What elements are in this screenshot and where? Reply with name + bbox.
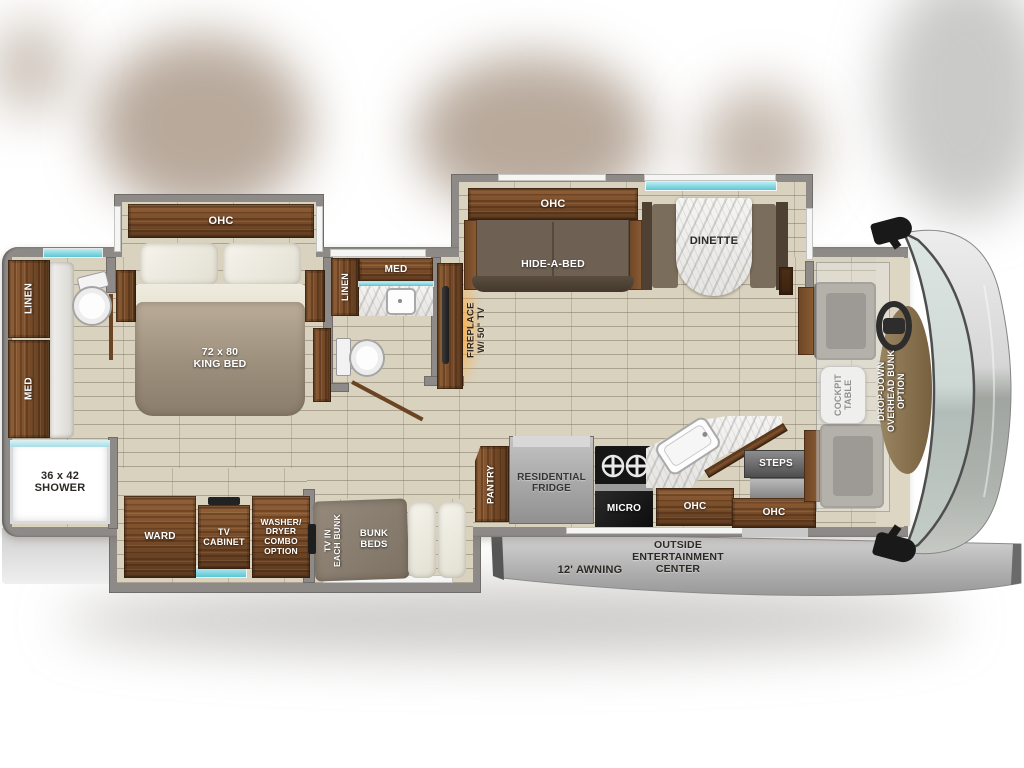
tv-cabinet-label: TV CABINET bbox=[198, 505, 250, 569]
mid-toilet-bowl bbox=[349, 339, 385, 377]
mid-linen-cabinet: LINEN bbox=[331, 258, 359, 316]
living-ohc-label: OHC bbox=[468, 188, 638, 220]
mid-top-window bbox=[330, 249, 426, 257]
pantry-cabinet: PANTRY bbox=[475, 446, 509, 522]
king-bed-label: 72 x 80 KING BED bbox=[135, 302, 305, 416]
dinette-table: DINETTE bbox=[676, 198, 752, 296]
burner-icons bbox=[595, 446, 653, 486]
bunk-beds-label: BUNK BEDS bbox=[348, 524, 400, 556]
awning-length-label: 12' AWNING bbox=[534, 563, 646, 577]
microwave: MICRO bbox=[595, 491, 653, 527]
cooktop bbox=[595, 446, 653, 486]
mid-linen-label: LINEN bbox=[331, 258, 359, 316]
rv-floor-plan: OUTSIDE ENTERTAINMENT CENTER 12' AWNING … bbox=[0, 0, 1024, 768]
dinette-label: DINETTE bbox=[676, 186, 752, 296]
entry-door-opening bbox=[742, 527, 808, 537]
living-slide-window-2 bbox=[644, 174, 776, 181]
king-bed: 72 x 80 KING BED bbox=[133, 240, 308, 416]
bedroom-dresser bbox=[313, 328, 331, 402]
kitchen-ohc-label: OHC bbox=[656, 488, 734, 526]
shower-stall: 36 x 42 SHOWER bbox=[10, 440, 110, 524]
rear-bath-wall bbox=[106, 257, 116, 293]
bunk-pillow-2 bbox=[438, 502, 466, 578]
dinette-bench-left bbox=[652, 204, 678, 288]
bunk-tv-marker bbox=[308, 524, 316, 554]
dinette-bench-left-back bbox=[642, 202, 652, 290]
rear-toilet-bowl bbox=[72, 286, 112, 326]
entry-step-platform bbox=[750, 478, 804, 498]
tv-cabinet: TV CABINET bbox=[198, 505, 250, 569]
kitchen-ohc-cabinet: OHC bbox=[656, 488, 734, 526]
bedroom-tv bbox=[208, 497, 240, 505]
mid-med-label: MED bbox=[359, 258, 433, 282]
micro-label: MICRO bbox=[595, 491, 653, 527]
drop-down-bunk-label: DROP-DOWN OVERHEAD BUNK OPTION bbox=[866, 336, 916, 446]
nightstand-left bbox=[116, 270, 136, 322]
washer-dryer-cabinet: WASHER/ DRYER COMBO OPTION bbox=[252, 496, 310, 578]
bed-slide-window-left bbox=[114, 206, 121, 252]
bed-blanket: 72 x 80 KING BED bbox=[135, 302, 305, 416]
rear-bath-counter bbox=[50, 262, 74, 438]
living-slide-window-1 bbox=[498, 174, 606, 181]
bed-pillow-right bbox=[223, 243, 301, 285]
dinette-side-window bbox=[806, 208, 813, 260]
residential-fridge: RESIDENTIAL FRIDGE bbox=[509, 436, 594, 524]
rear-med-cabinet: MED bbox=[8, 340, 50, 438]
shower-label: 36 x 42 SHOWER bbox=[10, 440, 110, 524]
rear-linen-label: LINEN bbox=[8, 260, 50, 338]
sink-faucet bbox=[398, 299, 402, 303]
pantry-label: PANTRY bbox=[475, 446, 509, 522]
cockpit-side-cabinet bbox=[779, 267, 793, 295]
rear-linen-cabinet: LINEN bbox=[8, 260, 50, 338]
fridge-label: RESIDENTIAL FRIDGE bbox=[509, 442, 594, 524]
hide-a-bed-sofa: HIDE-A-BED bbox=[464, 220, 642, 296]
mid-med-cabinet: MED bbox=[359, 258, 433, 282]
bunk-tv-label: TV IN EACH BUNK bbox=[318, 504, 348, 578]
bed-pillow-left bbox=[140, 243, 218, 285]
background-shadow bbox=[95, 35, 310, 215]
entry-steps: STEPS bbox=[744, 450, 808, 478]
tv-50in bbox=[442, 286, 449, 364]
bedroom-ohc-label: OHC bbox=[128, 204, 314, 238]
hide-a-bed-label: HIDE-A-BED bbox=[464, 234, 642, 296]
background-shadow bbox=[880, 0, 1024, 220]
bedroom-ohc-cabinet: OHC bbox=[128, 204, 314, 238]
rear-med-label: MED bbox=[8, 340, 50, 438]
steps-label: STEPS bbox=[744, 450, 808, 478]
bath-sink bbox=[386, 288, 416, 315]
ward-label: WARD bbox=[124, 496, 196, 578]
dinette-bench-right bbox=[750, 204, 776, 288]
bunk-pillow-1 bbox=[408, 502, 436, 578]
counter-band bbox=[595, 484, 653, 491]
bed-slide-window-right bbox=[316, 206, 323, 252]
driver-seat-back bbox=[798, 287, 814, 355]
washer-dryer-label: WASHER/ DRYER COMBO OPTION bbox=[252, 496, 310, 578]
wardrobe: WARD bbox=[124, 496, 196, 578]
nightstand-right bbox=[305, 270, 325, 322]
rear-bath-window bbox=[44, 249, 102, 257]
background-shadow bbox=[0, 20, 70, 115]
living-ohc-cabinet: OHC bbox=[468, 188, 638, 220]
